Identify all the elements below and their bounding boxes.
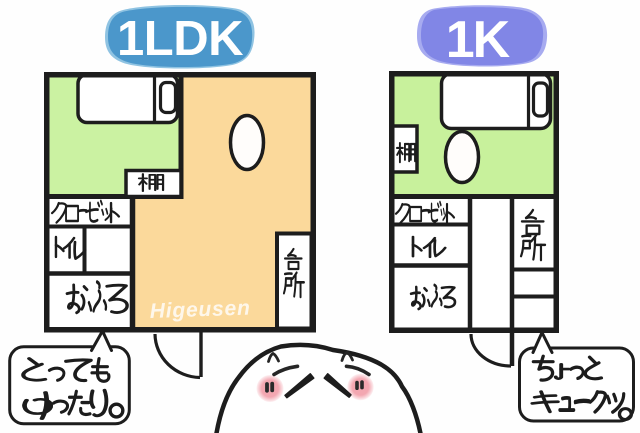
svg-text:1LDK: 1LDK <box>117 12 243 66</box>
svg-text:1K: 1K <box>446 11 511 69</box>
svg-text:Higeusen: Higeusen <box>149 296 251 323</box>
